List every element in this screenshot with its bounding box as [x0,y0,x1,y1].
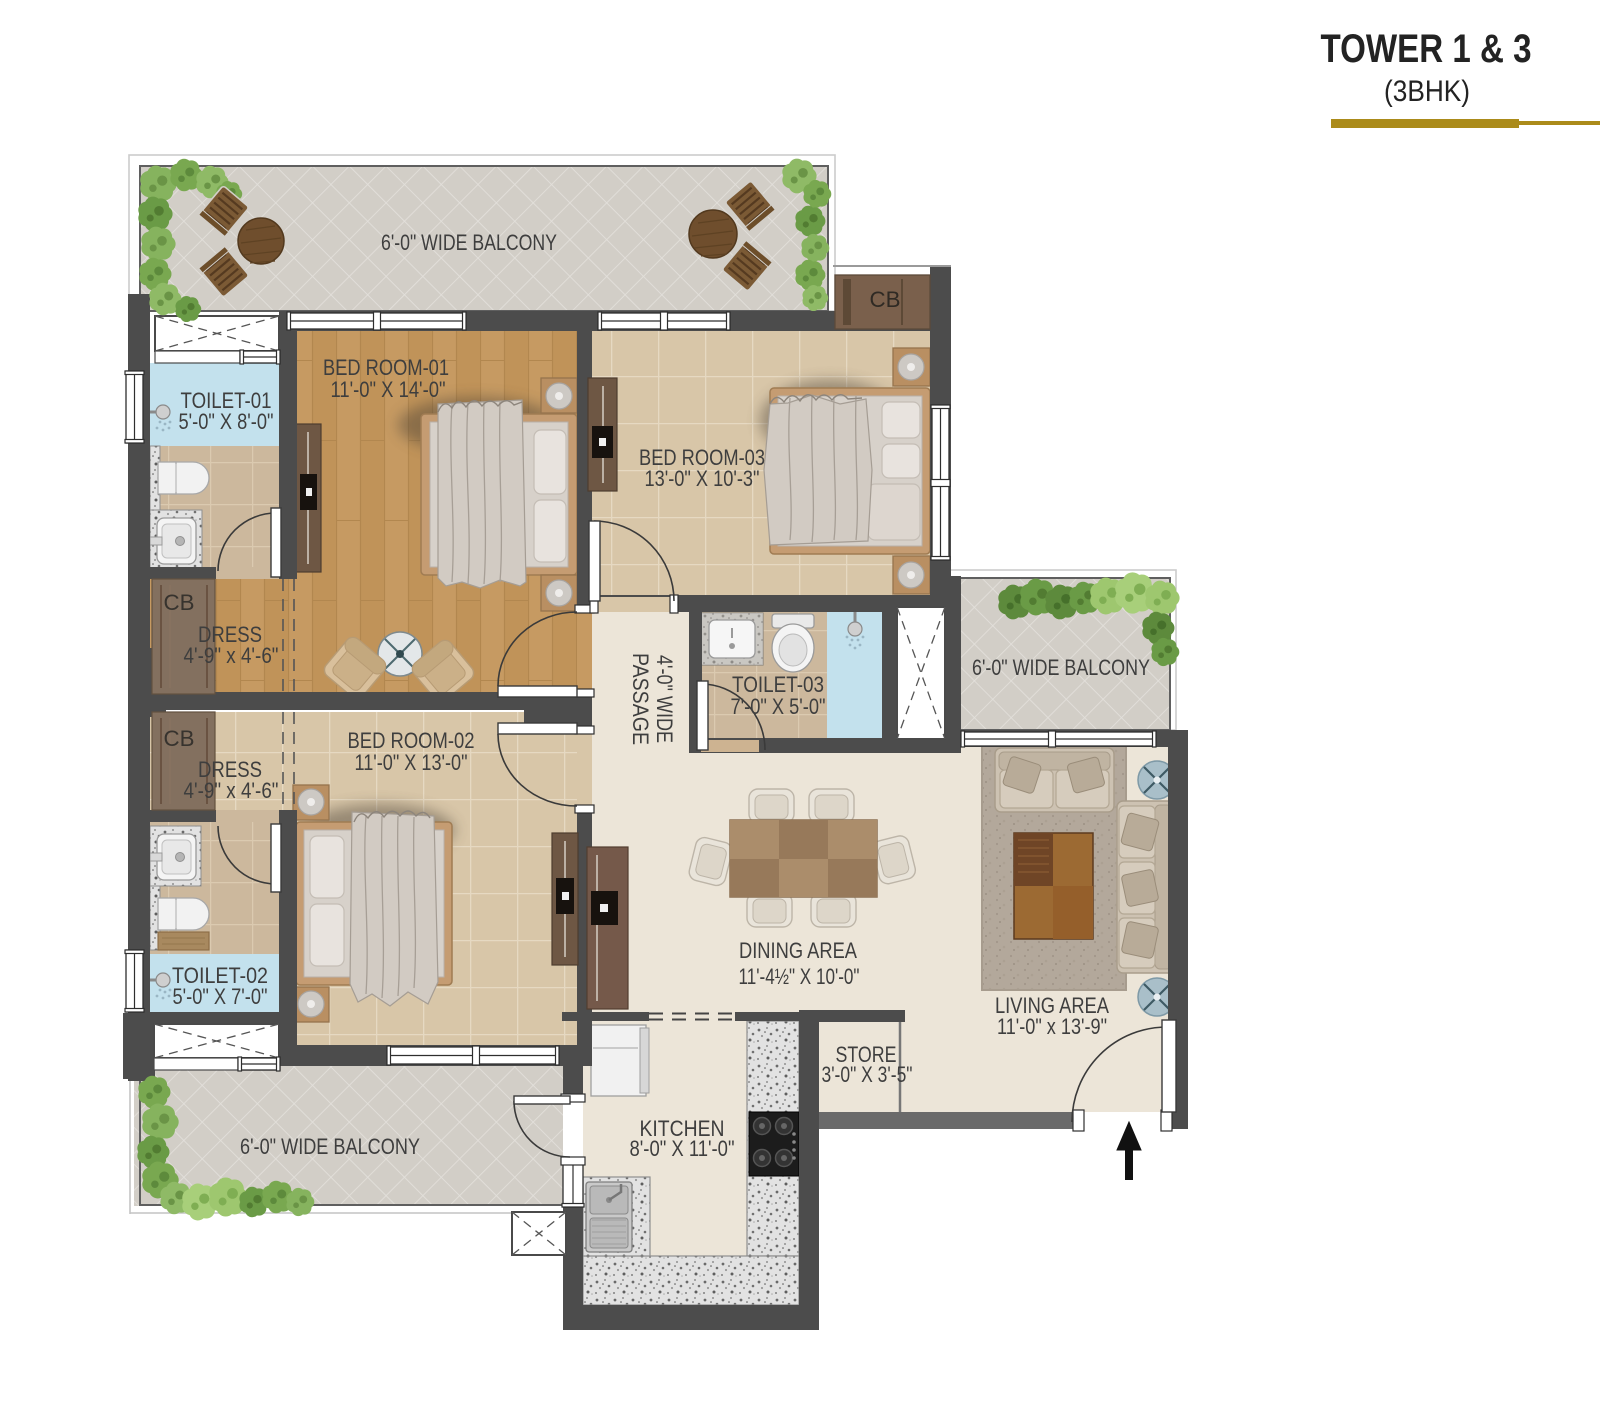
svg-text:5'-0" X 7'-0": 5'-0" X 7'-0" [173,984,268,1009]
svg-text:4'-9" x 4'-6": 4'-9" x 4'-6" [184,778,279,803]
svg-text:6'-0" WIDE BALCONY: 6'-0" WIDE BALCONY [240,1134,420,1159]
svg-text:4'-9" x 4'-6": 4'-9" x 4'-6" [184,643,279,668]
svg-text:6'-0" WIDE BALCONY: 6'-0" WIDE BALCONY [381,230,557,255]
svg-text:CB: CB [164,590,195,615]
svg-text:11'-0" X 14'-0": 11'-0" X 14'-0" [331,377,446,402]
svg-text:7'-0" X 5'-0": 7'-0" X 5'-0" [731,694,826,719]
svg-text:4'-0" WIDE: 4'-0" WIDE [652,655,677,743]
svg-text:11'-0" X 13'-0": 11'-0" X 13'-0" [355,750,468,775]
svg-text:DINING AREA: DINING AREA [739,938,857,963]
svg-text:8'-0" X 11'-0": 8'-0" X 11'-0" [630,1136,735,1161]
svg-text:CB: CB [164,726,195,751]
svg-text:CB: CB [870,287,901,312]
svg-text:(3BHK): (3BHK) [1384,75,1470,108]
svg-text:6'-0" WIDE BALCONY: 6'-0" WIDE BALCONY [972,655,1150,680]
svg-text:11'-4½" X 10'-0": 11'-4½" X 10'-0" [739,964,860,989]
svg-text:5'-0" X 8'-0": 5'-0" X 8'-0" [179,409,274,434]
svg-text:13'-0" X 10'-3": 13'-0" X 10'-3" [645,466,760,491]
svg-text:3'-0" X 3'-5": 3'-0" X 3'-5" [822,1062,913,1087]
svg-text:PASSAGE: PASSAGE [628,653,653,745]
svg-text:11'-0" x 13'-9": 11'-0" x 13'-9" [997,1014,1107,1039]
svg-text:TOWER 1 & 3: TOWER 1 & 3 [1321,27,1532,71]
